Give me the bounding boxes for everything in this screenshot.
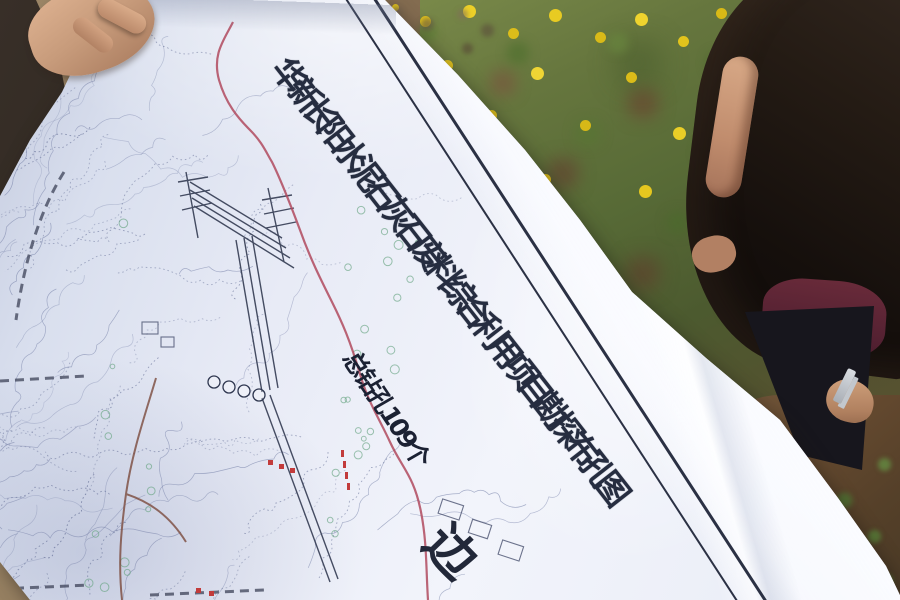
- contour-line: [8, 527, 181, 538]
- contour-line: [159, 452, 289, 497]
- contour-line: [10, 223, 51, 295]
- vegetation-mark: [146, 464, 151, 469]
- contour-line: [0, 421, 21, 468]
- map-structures: [178, 172, 338, 582]
- contour-line: [67, 161, 203, 224]
- contour-line: [0, 85, 14, 120]
- vegetation-mark: [119, 219, 128, 228]
- contour-line: [43, 474, 94, 558]
- contour-line: [0, 68, 46, 121]
- photo-of-survey-map-in-field: 华新长阳水泥石灰石废料综合利用项目勘探布孔图 总钻孔109个 边: [0, 0, 900, 600]
- contour-line: [0, 496, 26, 511]
- contour-line: [0, 63, 45, 202]
- contour-line: [75, 115, 142, 132]
- contour-line: [0, 63, 46, 157]
- contour-line: [232, 470, 345, 559]
- vegetation-mark: [341, 397, 347, 403]
- contour-line: [0, 558, 44, 600]
- contour-line: [0, 15, 14, 46]
- contour-line: [5, 96, 56, 196]
- paper-sheet: 华新长阳水泥石灰石废料综合利用项目勘探布孔图 总钻孔109个 边: [0, 0, 900, 600]
- contour-line: [184, 439, 278, 456]
- dirt-road-line: [120, 378, 186, 600]
- contour-line: [117, 267, 241, 285]
- vegetation-mark: [345, 264, 352, 271]
- contour-line: [410, 489, 561, 523]
- contour-line: [58, 310, 120, 373]
- vegetation-mark: [407, 276, 413, 282]
- vegetation-mark: [354, 451, 362, 459]
- contour-line: [21, 352, 68, 421]
- contour-line: [0, 541, 47, 600]
- vegetation-mark: [327, 517, 333, 523]
- vegetation-mark: [384, 257, 393, 266]
- survey-map-paper: 华新长阳水泥石灰石废料综合利用项目勘探布孔图 总钻孔109个 边: [0, 0, 900, 600]
- vegetation-mark: [85, 579, 93, 587]
- vegetation-mark: [147, 487, 155, 495]
- contour-line: [0, 493, 113, 512]
- vegetation-mark: [390, 365, 399, 374]
- vegetation-mark: [124, 569, 130, 575]
- contour-line: [319, 449, 395, 578]
- vegetation-mark: [332, 469, 339, 476]
- contour-line: [106, 138, 166, 169]
- contour-line: [46, 440, 201, 459]
- vegetation-mark: [357, 206, 365, 214]
- contour-line: [159, 422, 182, 501]
- contour-line: [83, 571, 186, 600]
- vegetation-mark: [361, 325, 369, 333]
- vegetation-mark: [92, 531, 99, 538]
- silo-circles: [208, 376, 265, 401]
- vegetation-mark: [101, 410, 110, 419]
- contour-line: [3, 505, 37, 600]
- contour-line: [23, 127, 90, 158]
- contour-line: [0, 575, 20, 591]
- contour-line: [0, 52, 15, 78]
- contour-line: [17, 334, 134, 427]
- vegetation-mark: [387, 346, 395, 354]
- vegetation-mark: [355, 428, 361, 434]
- contour-line: [200, 565, 235, 600]
- contour-line: [33, 71, 99, 204]
- contour-line: [0, 161, 106, 226]
- contour-line: [0, 459, 50, 484]
- vegetation-mark: [394, 294, 401, 301]
- vegetation-mark: [146, 507, 151, 512]
- contour-line: [0, 485, 110, 547]
- contour-line: [16, 275, 84, 348]
- contour-line: [64, 240, 139, 272]
- contour-line: [14, 83, 22, 151]
- contour-line: [0, 428, 45, 496]
- contour-line: [242, 452, 328, 533]
- contour-line: [78, 228, 145, 239]
- vegetation-mark: [363, 443, 370, 450]
- vegetation-mark: [120, 558, 129, 567]
- contour-line: [0, 21, 21, 85]
- contour-line: [149, 36, 168, 110]
- contour-line: [130, 317, 221, 362]
- vegetation-mark: [110, 364, 115, 369]
- contour-line: [6, 238, 109, 257]
- contour-line: [236, 273, 307, 386]
- vegetation-mark: [105, 433, 112, 440]
- contour-line: [104, 137, 239, 177]
- vegetation-mark: [367, 428, 373, 434]
- contour-line: [0, 443, 14, 530]
- vegetation-mark: [361, 436, 366, 441]
- contour-line: [0, 417, 96, 448]
- vegetation-mark: [100, 583, 109, 592]
- contour-line: [144, 32, 211, 54]
- contour-line: [89, 386, 120, 490]
